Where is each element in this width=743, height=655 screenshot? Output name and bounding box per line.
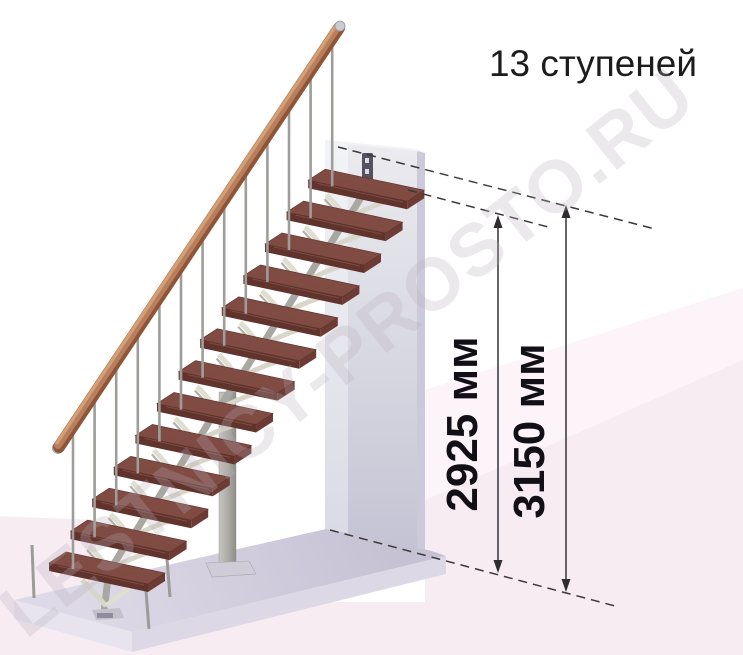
baluster-rod — [245, 166, 248, 314]
baluster-rod — [288, 99, 291, 250]
baluster-rod — [180, 265, 183, 409]
baluster-rod — [158, 298, 161, 441]
wall-bracket-slot — [365, 169, 369, 174]
wall-bracket-slot — [365, 158, 369, 163]
dimension-label-2925: 2925 мм — [438, 336, 487, 511]
baluster-rod — [266, 133, 269, 282]
baluster-rod — [331, 33, 334, 186]
baluster-rod — [137, 332, 140, 474]
ground-bracket-pad — [97, 613, 113, 618]
dimension-label-3150: 3150 мм — [505, 343, 554, 518]
wall-mount-bracket — [362, 153, 373, 180]
handrail-top-ferrule — [335, 21, 345, 31]
support-post-base-plate — [206, 561, 256, 577]
diagram-canvas: 2925 мм 3150 мм 13 ступеней LESTNICY-PRO… — [0, 0, 743, 655]
staircase-diagram: 2925 мм 3150 мм 13 ступеней LESTNICY-PRO… — [0, 0, 743, 655]
baluster-rod — [309, 66, 312, 218]
baluster-rod — [223, 199, 226, 346]
baluster-rod — [201, 232, 204, 378]
wall-side-face — [417, 151, 425, 558]
